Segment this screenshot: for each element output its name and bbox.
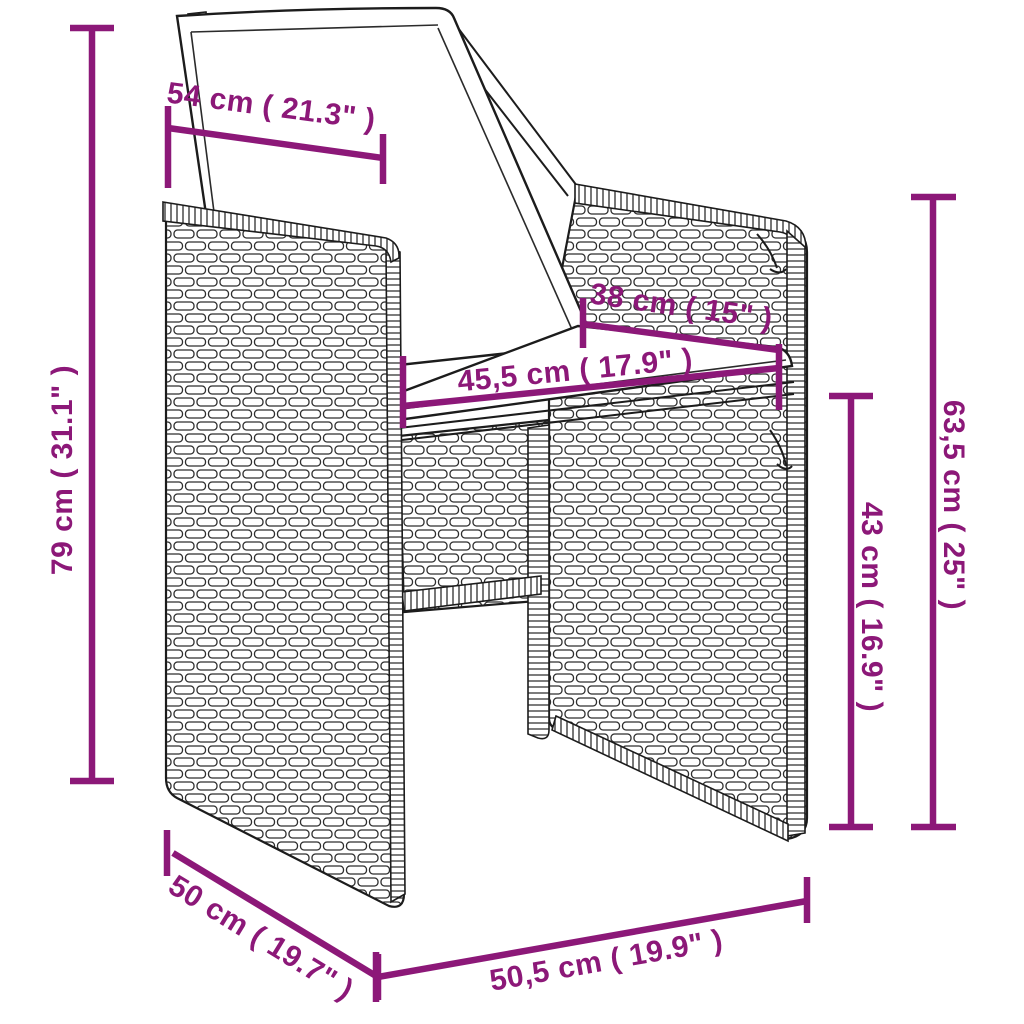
left-arm-panel [166,208,404,907]
dim-label-armrest-height: 63,5 cm ( 25" ) [937,400,970,610]
dimension-base-width: 50,5 cm ( 19.9" ) [378,877,807,1000]
dim-label-total-height: 79 cm ( 31.1" ) [46,365,79,575]
right-arm-front-edge [787,231,805,836]
dim-label-seat-depth: 50 cm ( 19.7" ) [163,869,359,1007]
dim-label-seat-height: 43 cm ( 16.9" ) [855,502,888,712]
dimension-armrest-height: 63,5 cm ( 25" ) [911,197,970,827]
dimension-total-height: 79 cm ( 31.1" ) [46,28,114,781]
product-dimension-diagram: 54 cm ( 21.3" ) 79 cm ( 31.1" ) 38 cm ( … [0,0,1024,1024]
chair-diagram-canvas: 54 cm ( 21.3" ) 79 cm ( 31.1" ) 38 cm ( … [0,0,1024,1024]
dimension-seat-height: 43 cm ( 16.9" ) [829,396,888,827]
